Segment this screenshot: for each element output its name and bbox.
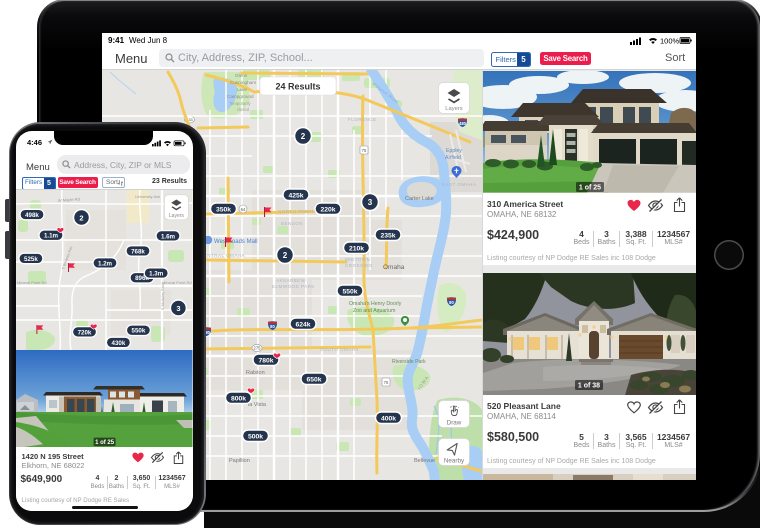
svg-text:Draw: Draw	[447, 420, 462, 427]
svg-text:la Vista: la Vista	[248, 402, 267, 408]
svg-text:100%: 100%	[660, 37, 680, 46]
svg-text:Layers: Layers	[169, 212, 185, 218]
svg-text:80: 80	[270, 324, 275, 329]
svg-text:624k: 624k	[295, 322, 310, 329]
svg-text:Layers: Layers	[445, 106, 463, 112]
svg-text:BENSON: BENSON	[281, 221, 303, 226]
svg-text:500k: 500k	[248, 434, 263, 441]
svg-text:525k: 525k	[24, 255, 38, 262]
svg-text:Ralston: Ralston	[246, 370, 265, 376]
svg-text:2: 2	[79, 213, 83, 222]
svg-text:3: 3	[368, 198, 373, 207]
svg-text:3: 3	[176, 303, 180, 312]
svg-text:S McAuley Blvd: S McAuley Blvd	[161, 283, 165, 310]
svg-text:64: 64	[241, 207, 246, 212]
svg-text:Nearby: Nearby	[444, 458, 465, 465]
svg-text:FLORENCE: FLORENCE	[348, 117, 377, 122]
svg-text:Papillion: Papillion	[229, 458, 250, 464]
svg-text:Omaha: Omaha	[383, 264, 405, 271]
svg-text:24 Results: 24 Results	[275, 82, 320, 92]
svg-text:768k: 768k	[131, 248, 145, 255]
svg-text:Lake: Lake	[237, 87, 247, 92]
svg-text:Cunningham: Cunningham	[230, 80, 256, 85]
svg-text:550k: 550k	[132, 327, 146, 334]
svg-text:1 of 25: 1 of 25	[578, 184, 600, 191]
svg-text:1.3m: 1.3m	[149, 270, 164, 277]
svg-text:Eppley: Eppley	[446, 148, 462, 154]
svg-text:1.6m: 1.6m	[161, 233, 176, 240]
svg-text:75: 75	[384, 380, 389, 385]
svg-text:ELMWOOD PARK: ELMWOOD PARK	[272, 284, 315, 289]
svg-text:498k: 498k	[25, 212, 39, 219]
svg-text:1 of 25: 1 of 25	[95, 440, 115, 446]
svg-text:Glenn: Glenn	[235, 73, 248, 78]
svg-text:275: 275	[254, 346, 262, 351]
svg-text:1.2m: 1.2m	[98, 260, 113, 267]
svg-text:780k: 780k	[258, 358, 273, 365]
svg-text:1 of 38: 1 of 38	[577, 382, 599, 389]
svg-text:Mineral Point Rd: Mineral Point Rd	[17, 280, 47, 285]
svg-text:400k: 400k	[381, 416, 396, 423]
svg-text:720k: 720k	[78, 329, 92, 336]
svg-text:Zoo and Aquarium: Zoo and Aquarium	[353, 308, 395, 314]
svg-text:80: 80	[449, 300, 454, 305]
svg-text:Omaha's Henry Doorly: Omaha's Henry Doorly	[349, 301, 402, 307]
svg-text:SOUTH OMAHA: SOUTH OMAHA	[320, 347, 359, 352]
svg-text:2: 2	[283, 251, 288, 260]
svg-text:480: 480	[459, 121, 467, 126]
svg-text:University Ave: University Ave	[135, 194, 161, 199]
svg-text:75: 75	[362, 148, 367, 153]
svg-text:350k: 350k	[216, 207, 231, 214]
svg-text:220k: 220k	[320, 207, 335, 214]
svg-text:235k: 235k	[380, 233, 395, 240]
svg-text:800k: 800k	[231, 396, 246, 403]
svg-text:MIDTOWN: MIDTOWN	[345, 257, 370, 262]
svg-text:WestRoads Mall: WestRoads Mall	[214, 239, 258, 245]
svg-text:Bellevue: Bellevue	[414, 458, 435, 464]
svg-text:AKSARBEN/: AKSARBEN/	[276, 278, 307, 283]
svg-text:2: 2	[301, 132, 306, 141]
svg-text:Carter Lake: Carter Lake	[405, 196, 434, 202]
svg-text:EAST OMAHA: EAST OMAHA	[442, 182, 476, 187]
svg-text:CROSSING: CROSSING	[345, 263, 373, 268]
svg-text:NORTH OMAHA: NORTH OMAHA	[278, 209, 317, 214]
svg-text:Riverside Park: Riverside Park	[392, 359, 426, 365]
svg-text:Mineral Point Rd: Mineral Point Rd	[162, 280, 192, 285]
svg-text:210k: 210k	[349, 246, 364, 253]
svg-text:1.1m: 1.1m	[44, 232, 59, 239]
svg-text:430k: 430k	[112, 339, 126, 346]
svg-text:Temporarily: Temporarily	[229, 101, 252, 106]
svg-text:CENTRAL OMAHA: CENTRAL OMAHA	[200, 253, 245, 258]
svg-text:Airfield: Airfield	[445, 155, 461, 161]
svg-text:550k: 550k	[342, 289, 357, 296]
svg-text:425k: 425k	[288, 193, 303, 200]
svg-text:Campground: Campground	[227, 94, 254, 99]
svg-text:650k: 650k	[306, 377, 321, 384]
svg-text:closed: closed	[237, 107, 250, 112]
